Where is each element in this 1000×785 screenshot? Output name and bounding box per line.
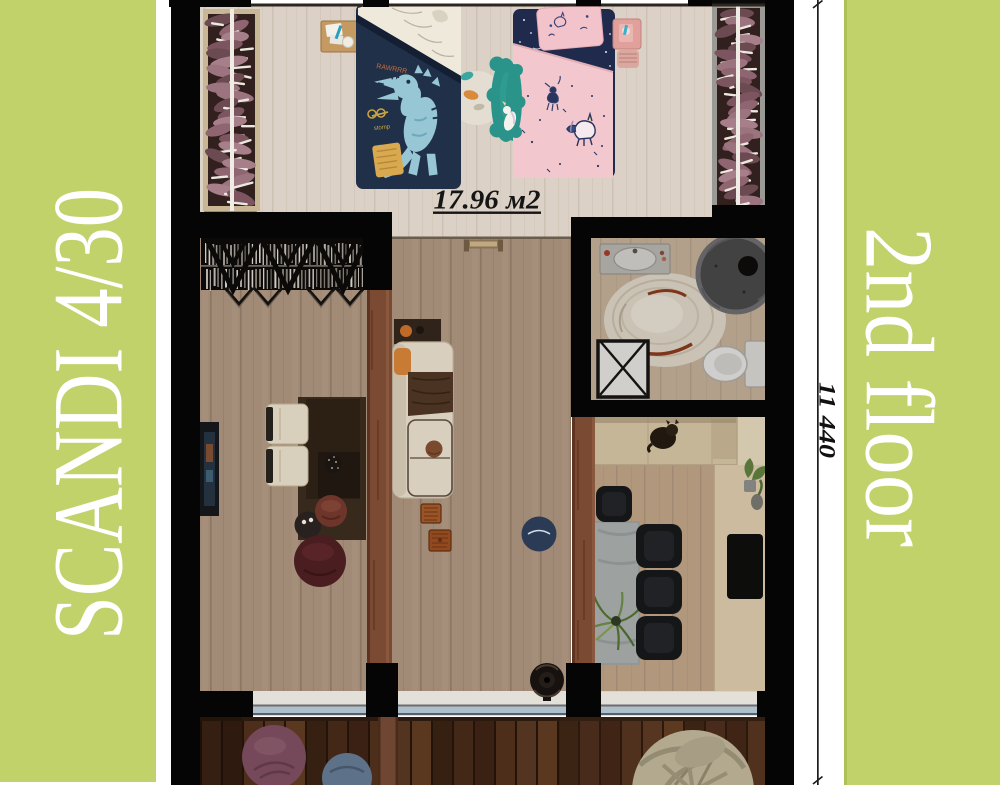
svg-text:17.96 м2: 17.96 м2 (434, 185, 541, 215)
svg-text:2nd floor: 2nd floor (845, 227, 953, 547)
svg-text:SCANDI 4/30: SCANDI 4/30 (33, 188, 144, 640)
svg-text:11 440: 11 440 (815, 382, 840, 459)
